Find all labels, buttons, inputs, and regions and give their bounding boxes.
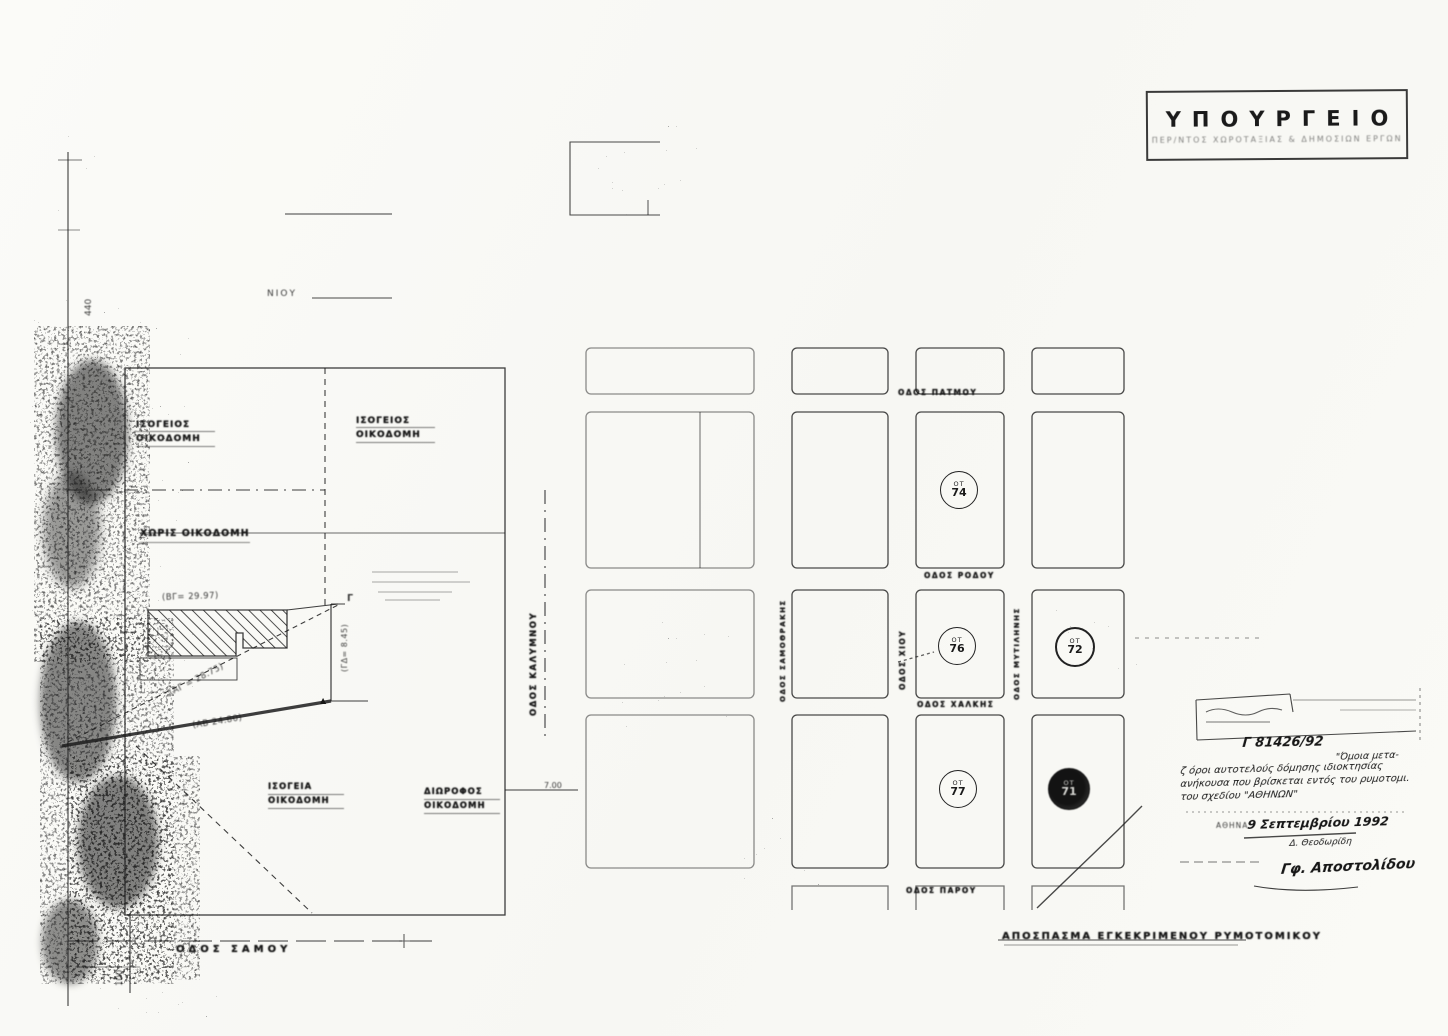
street-label-grid-bottom: ΟΔΟΣ ΠΑΡΟΥ <box>906 887 977 896</box>
axis-value-440: 440 <box>84 299 94 316</box>
stamp-subtitle: ΠΕΡ/ΝΤΟΣ ΧΩΡΟΤΑΞΙΑΣ & ΔΗΜΟΣΙΩΝ ΕΡΓΩΝ <box>1152 134 1403 145</box>
street-label-grid-vmid: ΟΔΟΣ ΧΙΟΥ <box>899 630 908 690</box>
street-label-grid-mid: ΟΔΟΣ ΡΟΔΟΥ <box>924 572 995 581</box>
block-circle-ot76: ΟΤ 76 <box>938 627 976 665</box>
parcel-label-bottom-left: ΙΣΟΓΕΙΑ ΟΙΚΟΔΟΜΗ <box>268 783 344 811</box>
scanned-plan-page: ΥΠΟΥΡΓΕΙΟ ΠΕΡ/ΝΤΟΣ ΧΩΡΟΤΑΞΙΑΣ & ΔΗΜΟΣΙΩΝ… <box>0 0 1448 1036</box>
survey-point-d-marker: ▲ <box>320 696 326 705</box>
street-label-samou: ΟΔΟΣ ΣΑΜΟΥ <box>176 944 291 956</box>
street-label-grid-lower: ΟΔΟΣ ΧΑΛΚΗΣ <box>917 701 994 710</box>
stamp-title: ΥΠΟΥΡΓΕΙΟ <box>1155 106 1400 132</box>
map-fragment-niou: ΝΙΟΥ <box>267 289 297 299</box>
parcel-label-top-right: ΙΣΟΓΕΙΟΣ ΟΙΚΟΔΟΜΗ <box>356 416 435 445</box>
parcel-label-mid: ΧΩΡΙΣ ΟΙΚΟΔΟΜΗ <box>140 529 250 543</box>
axis-value-100: 100 <box>116 970 126 986</box>
measurement-gd: (ΓΔ= 8.45) <box>340 624 349 672</box>
protocol-number: Γ 81426/92 <box>1242 736 1324 752</box>
officer-name: Δ. Θεοδωρίδη <box>1289 837 1352 850</box>
parcel-label-top-left: ΙΣΟΓΕΙΟΣ ΟΙΚΟΔΟΜΗ <box>136 420 215 449</box>
street-label-corridor: ΟΔΟΣ ΚΑΛΥΜΝΟΥ <box>530 612 540 716</box>
block-circle-ot74: ΟΤ 74 <box>940 471 978 509</box>
date-city-label: ΑΘΗΝΑ <box>1216 822 1248 831</box>
block-circle-ot77: ΟΤ 77 <box>939 770 977 808</box>
parcel-label-bottom-right: ΔΙΩΡΟΦΟΣ ΟΙΚΟΔΟΜΗ <box>424 788 500 816</box>
survey-point-g: Γ <box>347 594 353 605</box>
measurement-bg: (ΒΓ= 29.97) <box>162 592 219 604</box>
ministry-stamp: ΥΠΟΥΡΓΕΙΟ ΠΕΡ/ΝΤΟΣ ΧΩΡΟΤΑΞΙΑΣ & ΔΗΜΟΣΙΩΝ… <box>1146 89 1408 161</box>
block-circle-ot71: ΟΤ 71 <box>1048 768 1090 810</box>
street-label-grid-vright: ΟΔΟΣ ΜΥΤΙΛΗΝΗΣ <box>1013 607 1021 700</box>
street-label-grid-top: ΟΔΟΣ ΠΑΤΜΟΥ <box>898 389 977 398</box>
road-width-value: 7.00 <box>544 781 562 790</box>
street-label-grid-vleft: ΟΔΟΣ ΣΑΜΟΘΡΑΚΗΣ <box>779 599 787 702</box>
plan-caption: ΑΠΟΣΠΑΣΜΑ ΕΓΚΕΚΡΙΜΕΝΟΥ ΡΥΜΟΤΟΜΙΚΟΥ <box>1002 931 1322 943</box>
block-circle-ot72: ΟΤ 72 <box>1055 627 1095 667</box>
